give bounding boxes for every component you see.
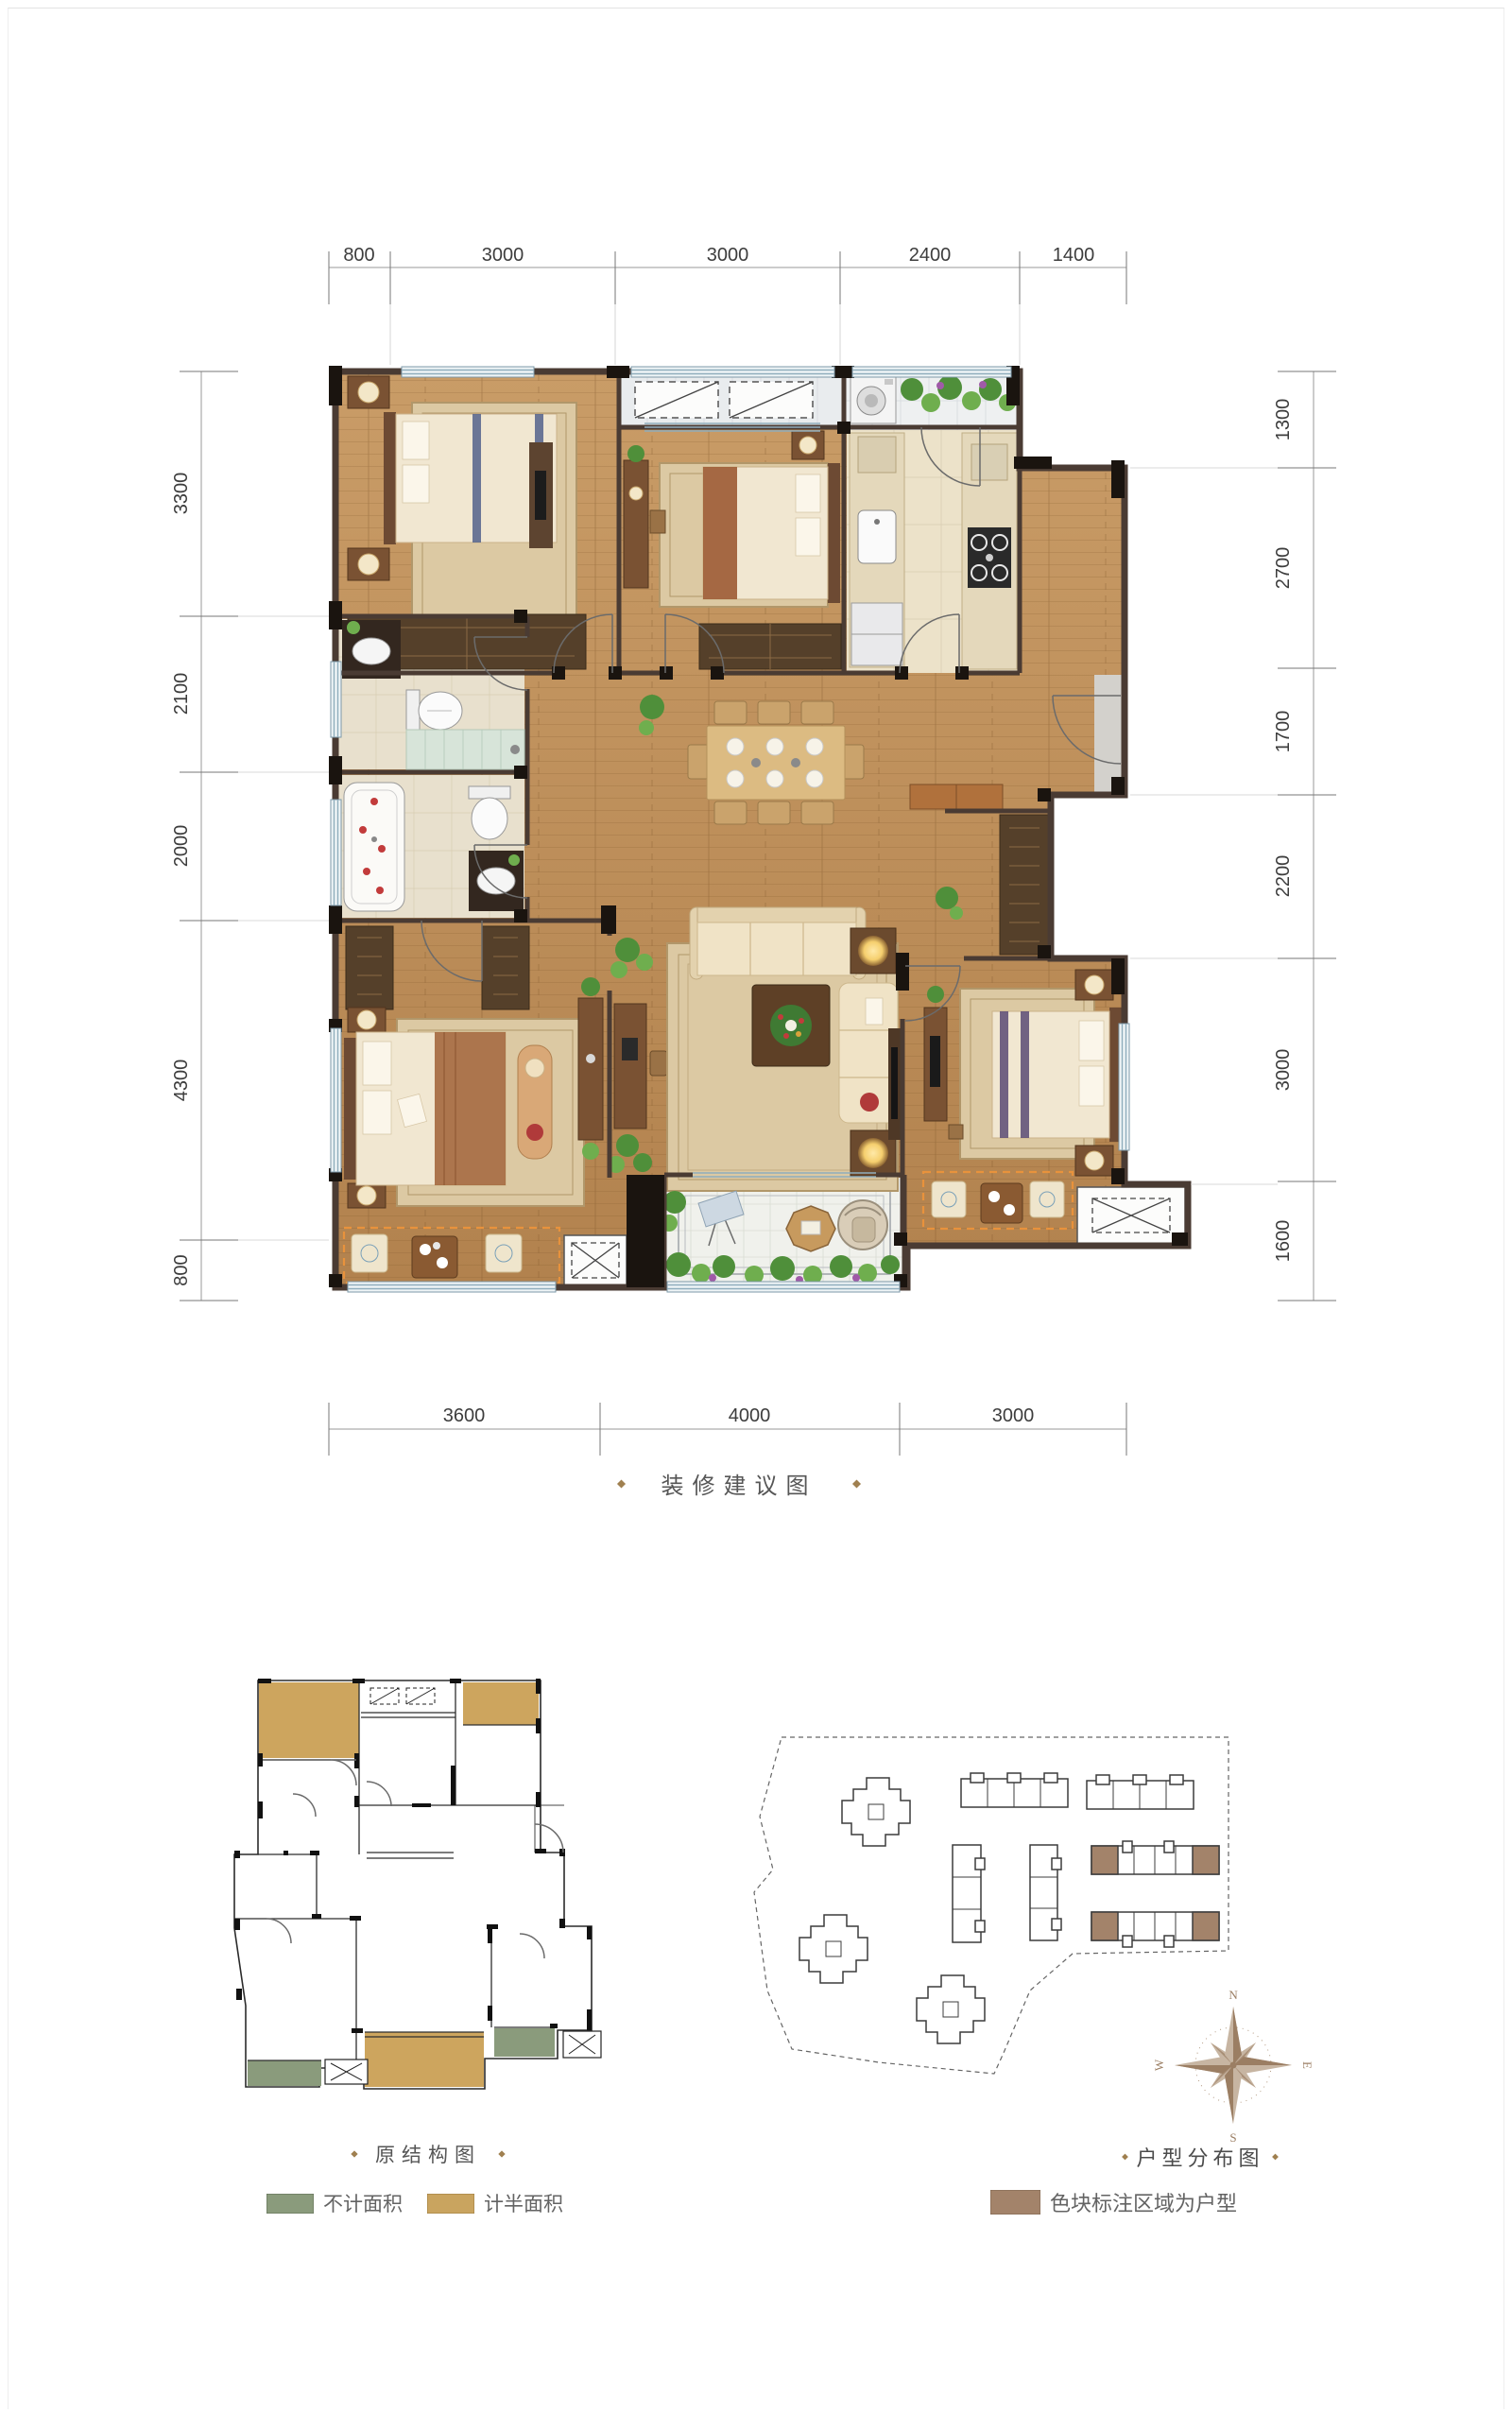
diamond-icon xyxy=(617,1479,626,1488)
dimension-right: 1300 2700 1700 2200 3000 1600 xyxy=(1130,371,1336,1301)
dim-label: 2000 xyxy=(171,825,192,868)
dim-label: 2400 xyxy=(909,245,952,266)
decorated-floor-plan: 800 3000 3000 2400 1400 3300 2100 2000 4… xyxy=(132,198,1389,1465)
legend-swatch-green xyxy=(266,2194,314,2214)
dim-label: 800 xyxy=(343,245,374,266)
dim-label: 1300 xyxy=(1273,399,1294,441)
compass-w: W xyxy=(1152,2059,1166,2071)
entry-foyer xyxy=(910,784,1003,809)
dim-label: 4300 xyxy=(171,1060,192,1102)
diamond-icon xyxy=(351,2150,357,2157)
slab-vertical xyxy=(953,1845,985,1942)
dim-label: 1700 xyxy=(1273,711,1294,753)
dim-label: 3600 xyxy=(443,1405,486,1426)
dim-label: 3000 xyxy=(992,1405,1035,1426)
dimension-top: 800 3000 3000 2400 1400 xyxy=(329,245,1126,365)
main-plan-caption: 装修建议图 xyxy=(618,1467,861,1500)
original-plan-legend: 不计面积 计半面积 xyxy=(266,2189,563,2217)
caption-text: 装修建议图 xyxy=(661,1467,817,1500)
legend-swatch-brown xyxy=(990,2190,1040,2215)
diamond-icon xyxy=(498,2150,505,2157)
slab-highlighted xyxy=(1091,1841,1219,1874)
legend-item: 计半面积 xyxy=(427,2189,563,2217)
dim-label: 4000 xyxy=(729,1405,771,1426)
floorplan-page: 800 3000 3000 2400 1400 3300 2100 2000 4… xyxy=(0,0,1512,2413)
diamond-icon xyxy=(852,1479,861,1488)
diamond-icon xyxy=(1122,2154,1128,2161)
wardrobe xyxy=(699,624,841,669)
dimension-bottom: 3600 4000 3000 xyxy=(329,1403,1126,1456)
dim-label: 2700 xyxy=(1273,547,1294,590)
dimension-left: 3300 2100 2000 4300 800 xyxy=(171,371,329,1301)
legend-label: 不计面积 xyxy=(323,2189,403,2217)
dim-label: 800 xyxy=(171,1254,192,1285)
site-plan-caption: 户型分布图 xyxy=(1121,2142,1279,2172)
dim-label: 3000 xyxy=(482,245,524,266)
slab-highlighted xyxy=(1091,1912,1219,1947)
slab-buildings xyxy=(953,1773,1219,1947)
dim-label: 2100 xyxy=(171,673,192,715)
legend-item: 不计面积 xyxy=(266,2189,403,2217)
compass-rose: N S E W xyxy=(1152,1988,1314,2145)
dim-label: 2200 xyxy=(1273,855,1294,898)
site-plan-legend: 色块标注区域为户型 xyxy=(990,2187,1237,2217)
dim-label: 3000 xyxy=(707,245,749,266)
caption-text: 原结构图 xyxy=(375,2140,481,2168)
diamond-icon xyxy=(1272,2154,1279,2161)
caption-text: 户型分布图 xyxy=(1136,2142,1263,2172)
dim-label: 3000 xyxy=(1273,1049,1294,1092)
legend-swatch-tan xyxy=(427,2194,474,2214)
slab-vertical xyxy=(1030,1845,1061,1940)
original-structure-plan xyxy=(227,1635,633,2098)
site-plan: N S E W xyxy=(747,1673,1351,2155)
original-plan-caption: 原结构图 xyxy=(351,2140,506,2168)
dim-label: 1600 xyxy=(1273,1220,1294,1263)
dim-label: 1400 xyxy=(1053,245,1095,266)
dim-label: 3300 xyxy=(171,473,192,515)
slab xyxy=(961,1773,1068,1807)
legend-label: 色块标注区域为户型 xyxy=(1050,2187,1237,2217)
living-room xyxy=(667,907,901,1191)
slab xyxy=(1087,1775,1194,1809)
legend-label: 计半面积 xyxy=(484,2189,563,2217)
compass-e: E xyxy=(1300,2061,1314,2069)
compass-n: N xyxy=(1228,1988,1238,2002)
